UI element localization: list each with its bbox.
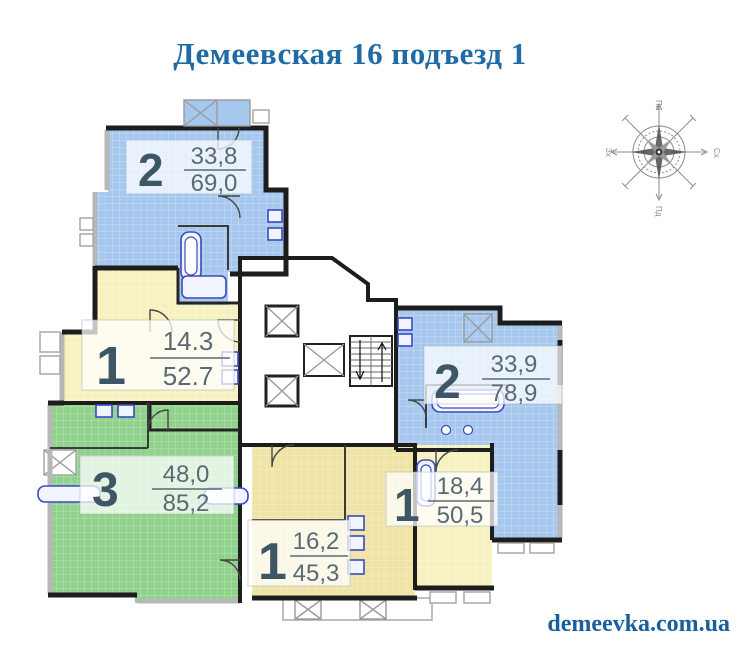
svg-text:1: 1 [258,533,287,591]
site-watermark[interactable]: demeevka.com.ua [547,611,730,638]
compass-north-label: Пн [654,100,663,110]
svg-text:1: 1 [96,336,126,396]
compass-west-label: Зх [604,148,613,157]
bathtub [182,276,226,298]
apartment-label-1-bottom-right[interactable]: 1 18,4 50,5 [386,472,498,531]
kitchen-unit [118,405,134,417]
sink [268,228,282,240]
page-title: Демеевская 16 подъезд 1 [0,36,700,72]
sink [398,318,412,330]
apartment-label-1-left[interactable]: 1 14.3 52.7 [82,320,234,396]
staircase [350,336,392,386]
svg-text:50,5: 50,5 [437,502,484,529]
compass-rose: Пн Сх Пд Зх [604,100,721,217]
toilet [464,426,473,435]
compass-east-label: Сх [712,148,721,158]
apartment-label-2-top-left[interactable]: 2 33,8 69,0 [126,140,252,197]
svg-text:2: 2 [138,144,164,196]
apartment-label-3-bottom-left[interactable]: 3 48,0 85,2 [80,456,234,517]
kitchen-unit [96,405,112,417]
svg-text:52.7: 52.7 [163,361,214,391]
svg-text:33,8: 33,8 [191,143,238,170]
floorplan-drawing: 2 33,8 69,0 1 14.3 52.7 3 48,0 85,2 2 33… [0,0,750,650]
compass-south-label: Пд [654,206,663,217]
svg-text:1: 1 [394,479,420,531]
svg-text:3: 3 [92,464,119,517]
svg-text:85,2: 85,2 [163,490,210,517]
svg-text:78,9: 78,9 [491,380,538,407]
toilet [442,426,451,435]
svg-text:14.3: 14.3 [163,326,214,356]
svg-text:33,9: 33,9 [491,351,538,378]
sink [268,210,282,222]
svg-text:48,0: 48,0 [163,461,210,488]
svg-text:69,0: 69,0 [191,170,238,197]
sink [398,334,412,346]
apartment-label-1-bottom-center[interactable]: 1 16,2 45,3 [248,520,350,591]
floorplan-page: Демеевская 16 подъезд 1 [0,0,750,650]
svg-text:2: 2 [434,356,461,409]
apartment-label-2-right[interactable]: 2 33,9 78,9 [424,346,562,409]
svg-text:16,2: 16,2 [293,528,340,555]
balcony-bottom [283,598,432,620]
svg-text:18,4: 18,4 [437,473,484,500]
svg-text:45,3: 45,3 [293,560,340,587]
building-core [240,256,415,450]
